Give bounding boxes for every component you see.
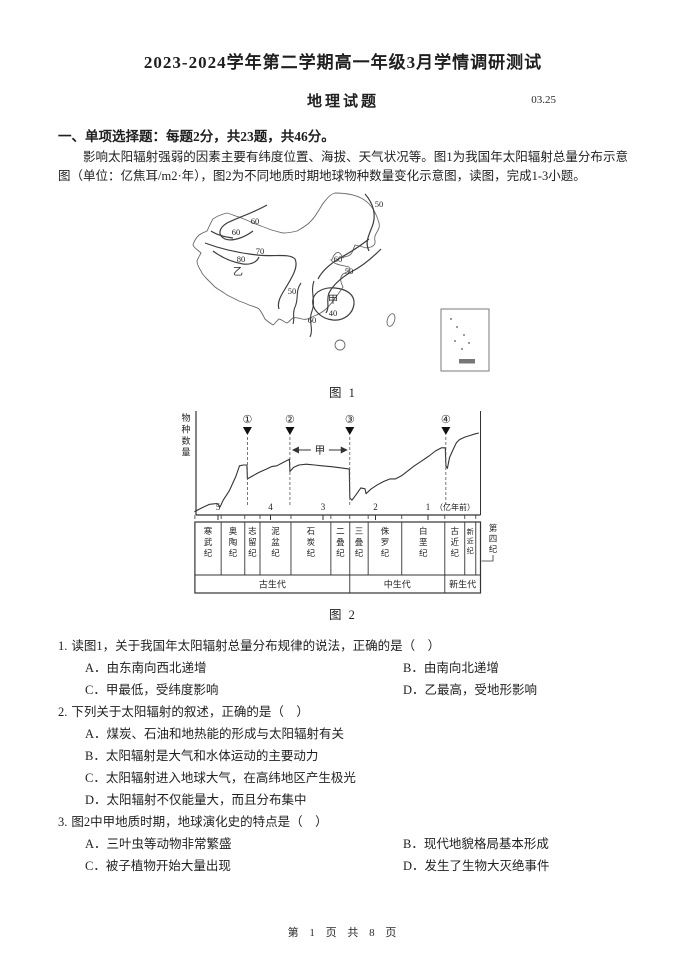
contour-50-northeast <box>365 194 374 251</box>
x-tick-label-4: 4 <box>268 502 273 512</box>
era-label-新生代: 新生代 <box>449 579 476 590</box>
question-1-option-a: A．由东南向西北递增 <box>85 657 403 679</box>
figure-1-caption: 图 1 <box>58 382 628 401</box>
quaternary-connector <box>482 555 494 561</box>
marker-triangle-icon-1 <box>243 427 252 435</box>
x-axis-unit-label: （亿年前） <box>435 502 475 512</box>
contour-70-west <box>205 243 296 309</box>
inset-label-smudge <box>459 359 475 364</box>
map-label-60: 60 <box>334 254 343 264</box>
subject-title: 地理试题 <box>307 94 379 110</box>
map-label-50: 50 <box>345 266 354 276</box>
page-number-footer: 第 1 页 共 8 页 <box>0 924 688 940</box>
question-2-option-a: A．煤炭、石油和地热能的形成与太阳辐射有关 <box>85 723 628 745</box>
species-count-curve <box>194 433 479 512</box>
question-1-stem: 读图1，关于我国年太阳辐射总量分布规律的说法，正确的是（ ） <box>71 639 440 653</box>
figure-2-caption: 图 2 <box>58 604 628 623</box>
map-label-甲: 甲 <box>328 295 338 306</box>
figure-2-chart: 物种数量54321（亿年前）①②③④甲寒武纪奥陶纪志留纪泥盆纪石炭纪二叠纪三叠纪… <box>58 403 628 604</box>
page-title: 2023-2024学年第二学期高一年级3月学情调研测试 <box>58 48 628 73</box>
era-label-古生代: 古生代 <box>259 579 286 590</box>
question-3-options: A．三叶虫等动物非常繁盛 B．现代地貌格局基本形成 C．被子植物开始大量出现 D… <box>58 833 628 877</box>
map-label-40: 40 <box>329 308 338 318</box>
questions-block: 1.读图1，关于我国年太阳辐射总量分布规律的说法，正确的是（ ） A．由东南向西… <box>58 635 628 877</box>
question-3-option-c: C．被子植物开始大量出现 <box>85 855 403 877</box>
x-tick-label-3: 3 <box>321 502 326 512</box>
question-2-option-b: B．太阳辐射是大气和水体运动的主要动力 <box>85 745 628 767</box>
map-label-乙: 乙 <box>233 266 243 278</box>
period-label-侏罗纪: 侏罗纪 <box>381 526 390 558</box>
marker-number-4: ④ <box>441 414 451 426</box>
question-1-options: A．由东南向西北递增 B．由南向北递增 C．甲最低，受纬度影响 D．乙最高，受地… <box>58 657 628 701</box>
species-evolution-chart: 物种数量54321（亿年前）①②③④甲寒武纪奥陶纪志留纪泥盆纪石炭纪二叠纪三叠纪… <box>178 403 508 599</box>
contour-60-south-squiggle <box>310 281 314 337</box>
marker-number-2: ② <box>285 414 295 426</box>
period-label-奥陶纪: 奥陶纪 <box>229 526 238 558</box>
question-2-option-d: D．太阳辐射不仅能量大，而且分布集中 <box>85 789 628 811</box>
china-solar-radiation-map: 5060607080乙605050甲4060 <box>183 191 503 377</box>
question-3-option-b: B．现代地貌格局基本形成 <box>403 833 628 855</box>
question-3-stem: 图2中甲地质时期，地球演化史的特点是（ ） <box>71 815 327 829</box>
question-2-stem: 下列关于太阳辐射的叙述，正确的是（ ） <box>71 705 309 719</box>
map-label-60: 60 <box>251 216 260 226</box>
map-label-50: 50 <box>375 199 384 209</box>
question-3-option-a: A．三叶虫等动物非常繁盛 <box>85 833 403 855</box>
figure-1-map: 5060607080乙605050甲4060 <box>58 191 628 382</box>
question-2-stem-row: 2.下列关于太阳辐射的叙述，正确的是（ ） <box>58 701 628 723</box>
marker-number-3: ③ <box>345 414 355 426</box>
hainan-island <box>335 340 345 350</box>
map-label-60: 60 <box>232 227 241 237</box>
question-3: 3.图2中甲地质时期，地球演化史的特点是（ ） A．三叶虫等动物非常繁盛 B．现… <box>58 811 628 877</box>
question-1-option-b: B．由南向北递增 <box>403 657 628 679</box>
x-tick-label-2: 2 <box>373 502 378 512</box>
question-2-option-c: C．太阳辐射进入地球大气，在高纬地区产生极光 <box>85 767 628 789</box>
question-1-option-c: C．甲最低，受纬度影响 <box>85 679 403 701</box>
taiwan-island <box>386 313 397 328</box>
section-heading: 一、单项选择题：每题2分，共23题，共46分。 <box>58 125 628 145</box>
arrowhead-right-icon <box>341 447 348 454</box>
era-label-中生代: 中生代 <box>384 579 411 590</box>
question-2-number: 2. <box>58 705 67 719</box>
exam-page: 2023-2024学年第二学期高一年级3月学情调研测试 地理试题 03.25 一… <box>0 0 688 877</box>
map-label-70: 70 <box>256 246 265 256</box>
period-label-白垩纪: 白垩纪 <box>419 526 428 558</box>
contour-60-northwest-a <box>220 205 267 240</box>
question-3-number: 3. <box>58 815 67 829</box>
period-label-二叠纪: 二叠纪 <box>336 526 345 558</box>
arrowhead-left-icon <box>292 447 299 454</box>
question-1: 1.读图1，关于我国年太阳辐射总量分布规律的说法，正确的是（ ） A．由东南向西… <box>58 635 628 701</box>
contour-60-central <box>318 239 369 279</box>
china-outline <box>193 193 379 325</box>
question-1-option-d: D．乙最高，受地形影响 <box>403 679 628 701</box>
question-2-options: A．煤炭、石油和地热能的形成与太阳辐射有关 B．太阳辐射是大气和水体运动的主要动… <box>58 723 628 811</box>
x-tick-label-1: 1 <box>426 502 431 512</box>
period-label-三叠纪: 三叠纪 <box>355 526 364 558</box>
period-label-寒武纪: 寒武纪 <box>204 526 213 558</box>
marker-triangle-icon-4 <box>441 427 450 435</box>
subject-row: 地理试题 03.25 <box>58 90 628 110</box>
y-axis-label: 物种数量 <box>181 412 190 458</box>
period-label-新近纪: 新近纪 <box>467 527 474 555</box>
map-label-60: 60 <box>308 315 317 325</box>
intro-paragraph: 影响太阳辐射强弱的因素主要有纬度位置、海拔、天气状况等。图1为我国年太阳辐射总量… <box>58 148 628 186</box>
period-label-古近纪: 古近纪 <box>451 526 460 558</box>
period-label-第四纪: 第四纪 <box>489 523 498 554</box>
question-2: 2.下列关于太阳辐射的叙述，正确的是（ ） A．煤炭、石油和地热能的形成与太阳辐… <box>58 701 628 811</box>
period-label-石炭纪: 石炭纪 <box>307 526 316 558</box>
marker-triangle-icon-3 <box>345 427 354 435</box>
period-label-泥盆纪: 泥盆纪 <box>271 526 280 558</box>
question-3-option-d: D．发生了生物大灭绝事件 <box>403 855 628 877</box>
map-label-80: 80 <box>237 254 246 264</box>
marker-triangle-icon-2 <box>285 427 294 435</box>
question-3-stem-row: 3.图2中甲地质时期，地球演化史的特点是（ ） <box>58 811 628 833</box>
inset-island-dots <box>450 318 470 350</box>
annotation-jia-label: 甲 <box>315 446 326 457</box>
date-code: 03.25 <box>531 94 556 106</box>
question-1-stem-row: 1.读图1，关于我国年太阳辐射总量分布规律的说法，正确的是（ ） <box>58 635 628 657</box>
question-1-number: 1. <box>58 639 67 653</box>
map-label-50: 50 <box>288 286 297 296</box>
marker-number-1: ① <box>242 414 252 426</box>
period-label-志留纪: 志留纪 <box>248 526 257 558</box>
